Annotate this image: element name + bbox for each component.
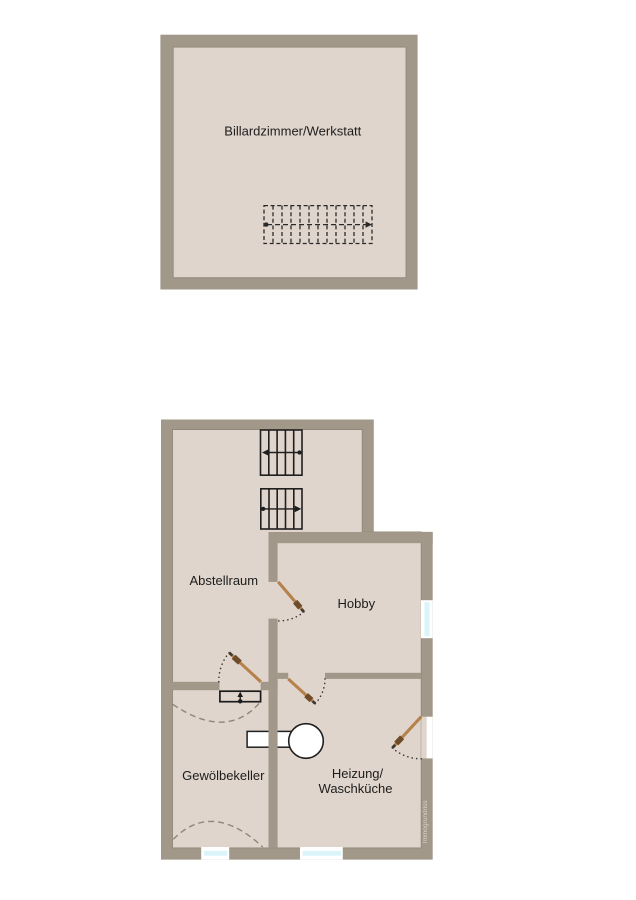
- svg-text:Immogrundriss: Immogrundriss: [422, 800, 429, 844]
- svg-text:Gewölbekeller: Gewölbekeller: [182, 768, 265, 783]
- svg-text:Hobby: Hobby: [338, 596, 376, 611]
- svg-text:Abstellraum: Abstellraum: [189, 573, 258, 588]
- svg-text:Waschküche: Waschküche: [319, 781, 393, 796]
- svg-text:Billardzimmer/Werkstatt: Billardzimmer/Werkstatt: [224, 124, 361, 139]
- svg-text:Heizung/: Heizung/: [332, 766, 384, 781]
